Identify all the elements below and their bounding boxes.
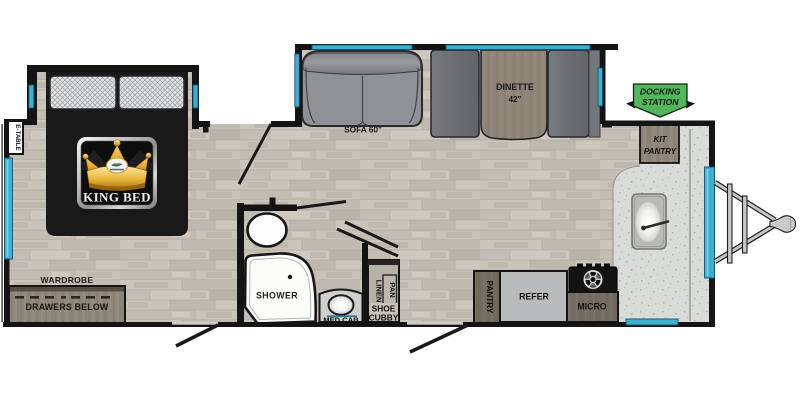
svg-text:PANTRY: PANTRY xyxy=(644,147,677,156)
svg-text:MICRO: MICRO xyxy=(577,302,606,312)
svg-text:SHOWER: SHOWER xyxy=(256,291,298,301)
svg-text:DRAWERS BELOW: DRAWERS BELOW xyxy=(26,302,109,312)
svg-text:KING BED: KING BED xyxy=(83,190,151,205)
svg-text:DINETTE: DINETTE xyxy=(496,82,534,92)
svg-text:E-TABLE: E-TABLE xyxy=(14,124,21,150)
svg-text:PANTRY: PANTRY xyxy=(485,281,494,314)
svg-text:SOFA 60": SOFA 60" xyxy=(344,125,382,135)
svg-text:42": 42" xyxy=(509,95,522,104)
svg-text:PAN: PAN xyxy=(388,282,397,297)
svg-text:DOCKING: DOCKING xyxy=(640,87,681,97)
svg-text:KIT: KIT xyxy=(654,135,668,144)
svg-text:STATION: STATION xyxy=(642,97,679,107)
svg-text:CUBBY: CUBBY xyxy=(369,313,399,323)
svg-text:REFER: REFER xyxy=(519,292,549,302)
svg-text:WARDROBE: WARDROBE xyxy=(41,275,94,285)
svg-text:LINEN: LINEN xyxy=(375,280,384,303)
